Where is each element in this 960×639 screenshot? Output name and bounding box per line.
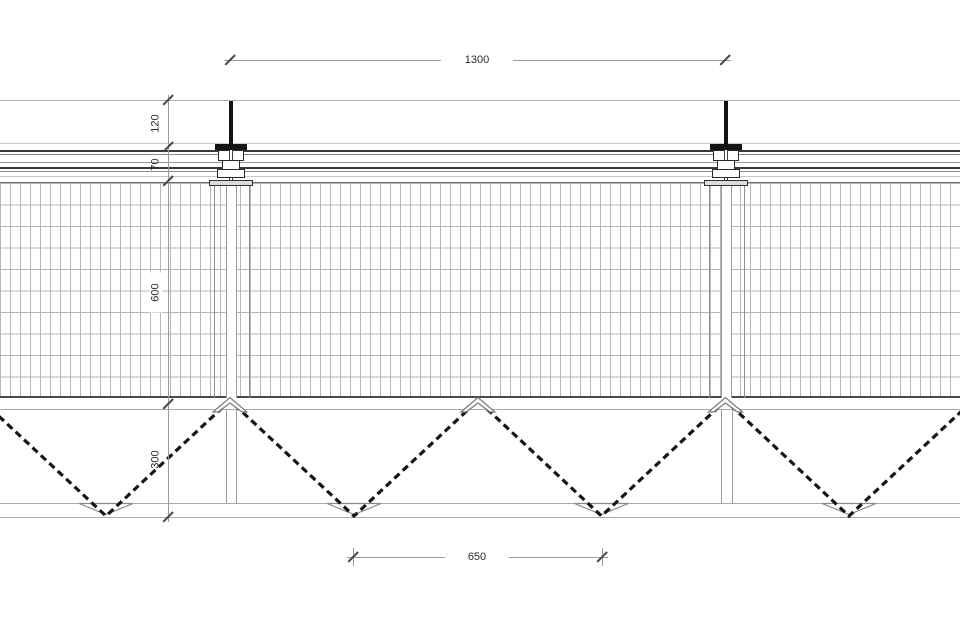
panel-joint-right — [721, 182, 732, 398]
truss-trough-fittings — [79, 504, 876, 515]
carrier-plate — [209, 180, 253, 186]
panel-stiffener-line — [214, 182, 215, 398]
truss-diagonal-web — [0, 401, 960, 517]
truss-peak-fitting — [213, 398, 247, 413]
profile-line-shadow-2 — [0, 171, 960, 172]
panel-grid — [0, 182, 960, 398]
hanger-channel — [217, 169, 245, 178]
dim-left-label-600: 600 — [150, 273, 163, 313]
dim-left-label-120: 120 — [150, 104, 163, 144]
profile-line-mid — [0, 162, 960, 163]
dim-left-label-70: 70 — [150, 145, 163, 185]
profile-line-dark-1 — [0, 150, 960, 152]
dim-left-label-300: 300 — [150, 440, 163, 480]
truss-trough-fitting — [327, 504, 381, 515]
truss-web-svg — [0, 394, 960, 526]
soffit-line — [0, 100, 960, 101]
truss-trough-fitting — [79, 504, 133, 515]
truss-peak-fitting — [709, 398, 743, 413]
hanger-right — [696, 100, 756, 188]
truss-struts — [227, 410, 733, 503]
furring-line-light-bottom — [0, 176, 960, 177]
hanger-rod — [229, 101, 233, 146]
truss-peak-fitting — [461, 398, 495, 413]
profile-line-shadow-1 — [0, 154, 960, 155]
drawing-canvas: 1300 120 70 600 300 650 — [0, 0, 960, 639]
panel-joint-left — [226, 182, 237, 398]
panel-stiffener-line — [249, 182, 250, 398]
panel-stiffener-line — [709, 182, 710, 398]
truss-trough-fitting — [822, 504, 876, 515]
dim-top-label: 1300 — [441, 54, 513, 67]
furring-line-light-top — [0, 143, 960, 144]
truss-trough-fitting — [575, 504, 629, 515]
hanger-rod — [724, 101, 728, 146]
dim-bottom-label: 650 — [445, 551, 509, 564]
panel-stiffener-line — [744, 182, 745, 398]
truss-peak-fittings — [213, 398, 743, 413]
carrier-plate — [704, 180, 748, 186]
dim-left-line — [168, 95, 169, 522]
hanger-channel — [712, 169, 740, 178]
profile-line-dark-2 — [0, 167, 960, 169]
hanger-left — [201, 100, 261, 188]
